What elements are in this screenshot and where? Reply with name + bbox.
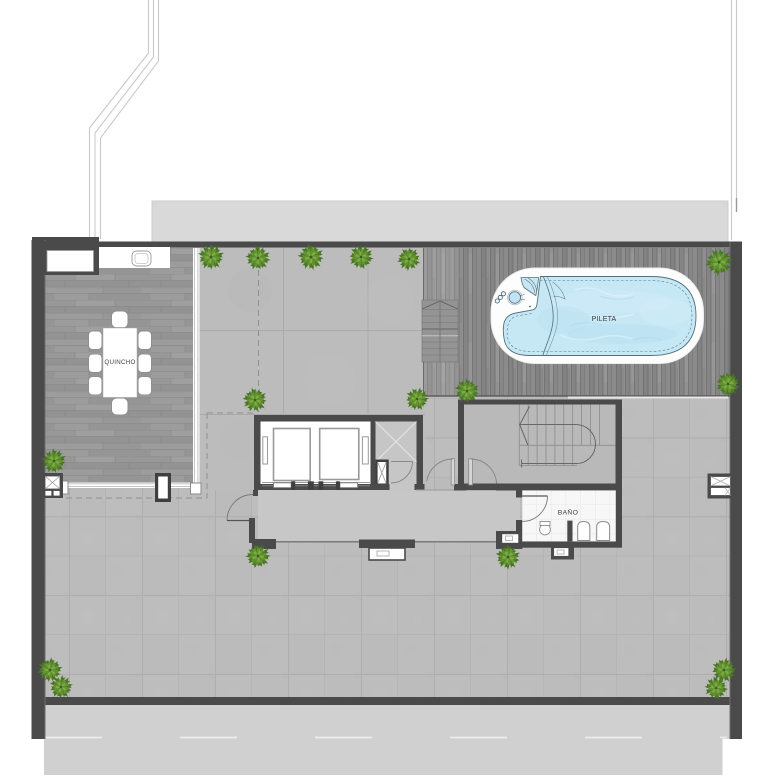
svg-text:QUINCHO: QUINCHO <box>104 359 135 366</box>
svg-text:PILETA: PILETA <box>592 316 617 323</box>
svg-text:BAÑO: BAÑO <box>558 508 578 517</box>
